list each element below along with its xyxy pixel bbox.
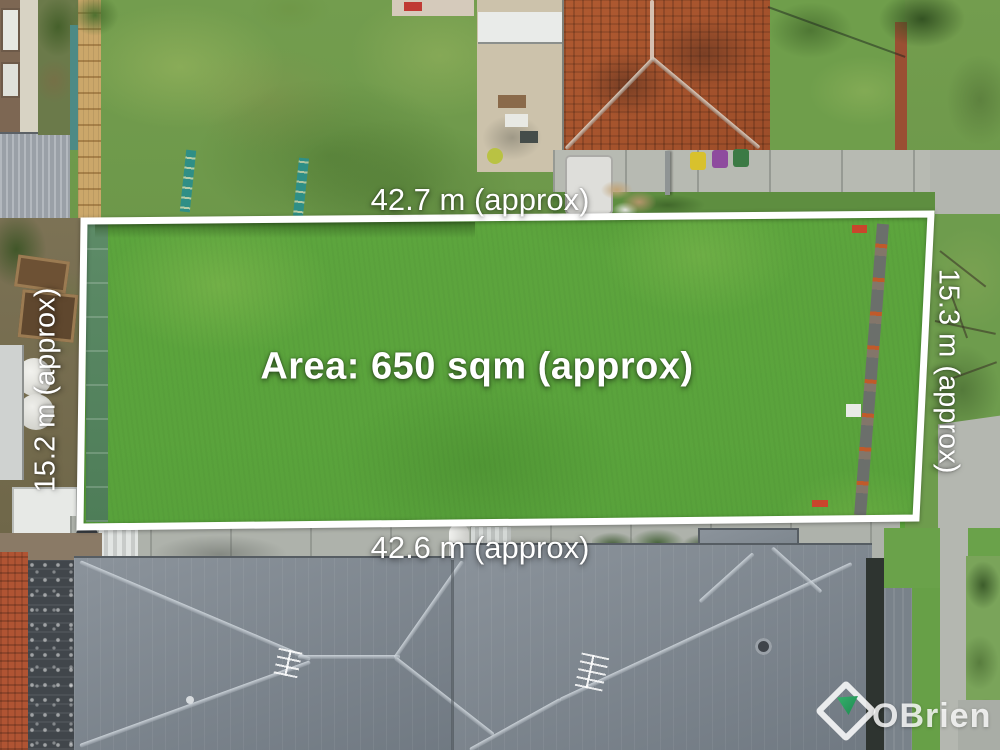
aerial-photo: 42.7 m (approx) 42.6 m (approx) 15.2 m (… xyxy=(0,0,1000,750)
obrien-brand-text: OBrien xyxy=(872,697,991,736)
area-label: Area: 650 sqm (approx) xyxy=(260,346,693,389)
right-depth-label: 15.3 m (approx) xyxy=(932,269,965,474)
bottom-width-label: 42.6 m (approx) xyxy=(371,530,590,566)
top-width-label: 42.7 m (approx) xyxy=(371,182,590,218)
left-depth-label: 15.2 m (approx) xyxy=(30,288,63,493)
